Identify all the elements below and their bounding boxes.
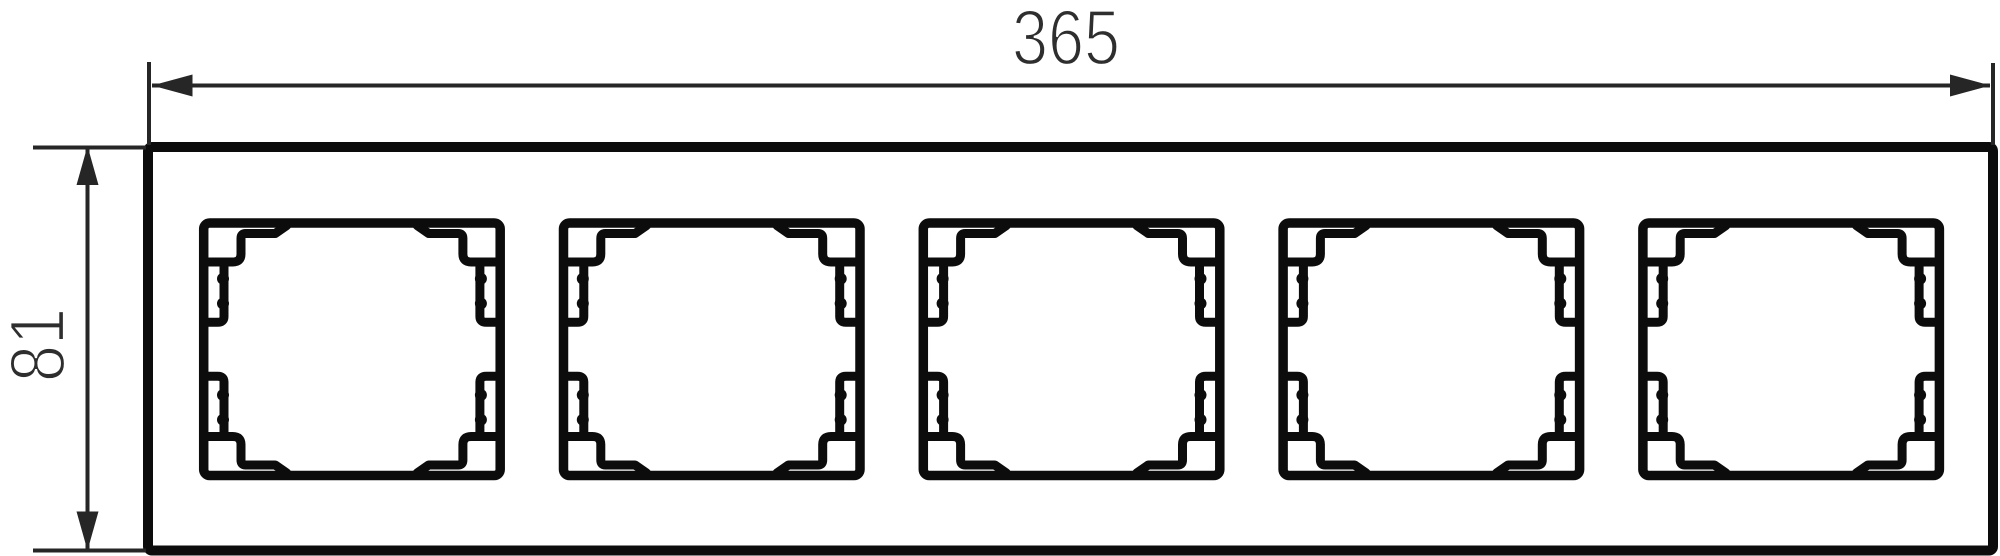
svg-text:365: 365 [1012,0,1120,81]
svg-text:81: 81 [0,308,81,382]
